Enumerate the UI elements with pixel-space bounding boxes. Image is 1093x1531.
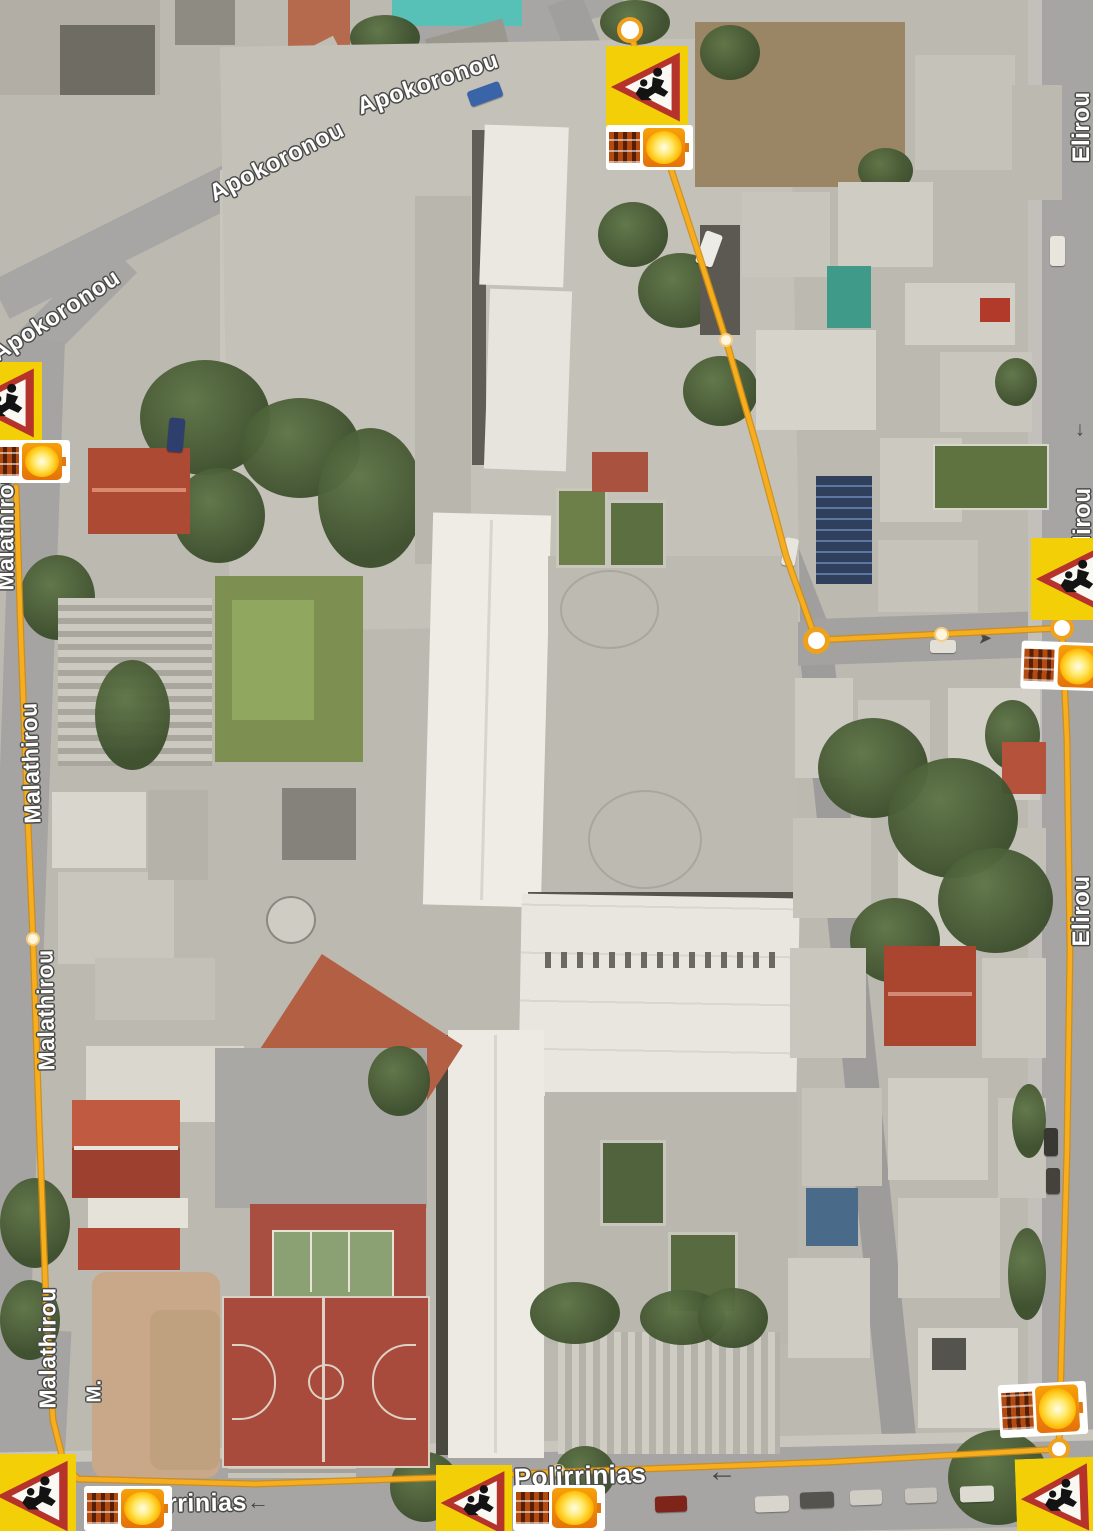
street-label-elirou: Elirou xyxy=(1068,875,1093,946)
route-node[interactable] xyxy=(803,627,830,654)
street-label-malathirou: Malathirou xyxy=(35,1287,62,1408)
children-crossing-sign-marker[interactable] xyxy=(0,1454,76,1531)
children-crossing-sign-icon xyxy=(606,46,688,128)
flashing-lamp-icon xyxy=(25,446,60,478)
flashing-beacon-marker[interactable] xyxy=(606,125,693,170)
flashing-beacon-marker[interactable] xyxy=(998,1381,1089,1439)
children-crossing-sign-marker[interactable] xyxy=(1031,538,1093,620)
children-crossing-sign-icon xyxy=(0,1454,76,1531)
beacon-bracket xyxy=(1079,1402,1084,1413)
solar-panel-icon xyxy=(1001,1392,1034,1430)
route-path[interactable] xyxy=(630,30,1070,1449)
route-overlay xyxy=(0,0,1093,1531)
street-label-malathirou: Malathirou xyxy=(0,469,20,590)
children-crossing-sign-marker[interactable] xyxy=(0,362,42,444)
satellite-map[interactable]: ← ← ↓ ➤ Apokoronou Apokoronou Apokoronou… xyxy=(0,0,1093,1531)
solar-panel-icon xyxy=(1023,648,1055,682)
flashing-lamp-icon xyxy=(555,1491,593,1525)
flashing-beacon-marker[interactable] xyxy=(513,1485,605,1531)
beacon-housing xyxy=(1035,1384,1080,1433)
beacon-bracket xyxy=(685,143,689,152)
children-crossing-sign-marker[interactable] xyxy=(1015,1457,1093,1531)
street-label-malathirou: Malathirou xyxy=(31,949,60,1071)
solar-panel-icon xyxy=(87,1493,118,1523)
route-waypoint[interactable] xyxy=(719,333,733,347)
beacon-housing xyxy=(1057,645,1093,688)
beacon-bracket xyxy=(62,457,66,466)
flashing-lamp-icon xyxy=(124,1492,161,1526)
beacon-housing xyxy=(643,128,685,167)
children-crossing-sign-icon xyxy=(0,362,42,444)
flashing-lamp-icon xyxy=(646,131,682,165)
flashing-beacon-marker[interactable] xyxy=(0,440,70,483)
street-label-malathirou: Malathirou xyxy=(15,702,46,824)
solar-panel-icon xyxy=(0,447,19,476)
route-node[interactable] xyxy=(617,17,643,43)
street-label-elirou: Elirou xyxy=(1068,91,1093,162)
children-crossing-sign-marker[interactable] xyxy=(606,46,688,128)
street-label-malathirou-partial: M. xyxy=(84,1379,107,1402)
route-waypoint[interactable] xyxy=(26,932,40,946)
children-crossing-sign-icon xyxy=(1031,538,1093,620)
flashing-beacon-marker[interactable] xyxy=(1020,641,1093,692)
solar-panel-icon xyxy=(609,132,640,162)
flashing-lamp-icon xyxy=(1038,1388,1077,1430)
beacon-housing xyxy=(552,1488,597,1528)
beacon-bracket xyxy=(164,1504,168,1513)
children-crossing-sign-icon xyxy=(1015,1457,1093,1531)
flashing-lamp-icon xyxy=(1060,648,1093,685)
beacon-housing xyxy=(121,1489,164,1528)
flashing-beacon-marker[interactable] xyxy=(84,1486,172,1531)
beacon-bracket xyxy=(597,1503,601,1513)
solar-panel-icon xyxy=(516,1492,549,1523)
children-crossing-sign-icon xyxy=(436,1465,512,1531)
beacon-housing xyxy=(22,443,63,480)
route-waypoint[interactable] xyxy=(934,627,949,642)
children-crossing-sign-marker[interactable] xyxy=(436,1465,512,1531)
